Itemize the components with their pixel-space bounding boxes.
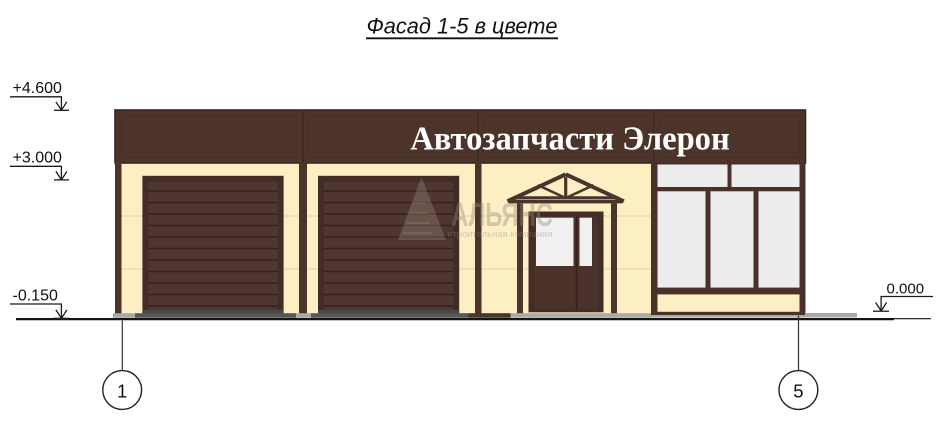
svg-text:0.000: 0.000 (887, 280, 925, 297)
svg-text:Автозапчасти Элерон: Автозапчасти Элерон (410, 120, 730, 157)
svg-text:строительная компания: строительная компания (448, 229, 553, 240)
svg-text:-0.150: -0.150 (13, 287, 58, 304)
svg-text:5: 5 (793, 381, 803, 402)
svg-text:АЛЬЯНС: АЛЬЯНС (451, 196, 553, 233)
svg-text:+4.600: +4.600 (13, 80, 62, 97)
svg-text:1: 1 (117, 381, 127, 402)
svg-text:+3.000: +3.000 (13, 149, 62, 166)
svg-text:Фасад 1-5 в цвете: Фасад 1-5 в цвете (366, 14, 557, 39)
